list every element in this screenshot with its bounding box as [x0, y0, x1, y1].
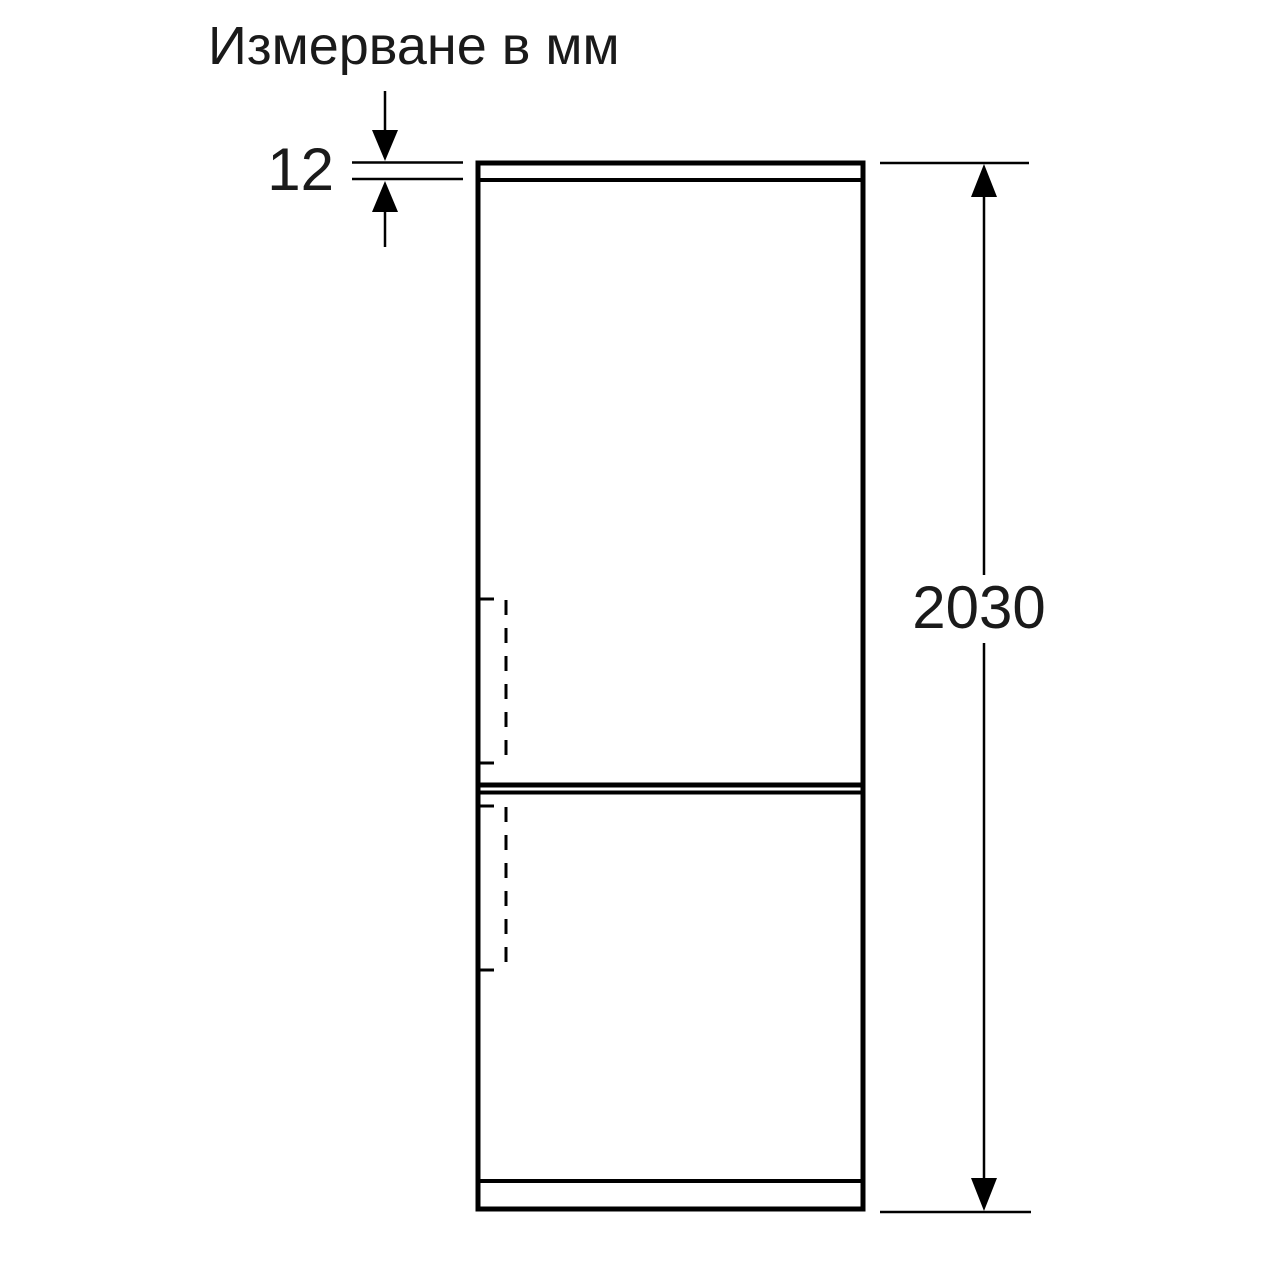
lower-door-hinge-marking — [478, 806, 506, 971]
dimension-diagram: Измерване в мм 12 — [0, 0, 1280, 1280]
upper-door-hinge-marking — [478, 599, 506, 766]
dim-top-thickness: 12 — [267, 91, 463, 247]
diagram-canvas: Измерване в мм 12 — [0, 0, 1280, 1280]
fridge-figure — [478, 163, 863, 1209]
arrow-up-icon — [971, 164, 997, 197]
arrow-up-icon — [372, 181, 398, 212]
arrow-down-icon — [372, 130, 398, 161]
dim-label-height: 2030 — [912, 574, 1045, 641]
arrow-down-icon — [971, 1178, 997, 1211]
dim-label-top-thickness: 12 — [267, 136, 334, 203]
diagram-title: Измерване в мм — [208, 16, 620, 76]
fridge-outline — [478, 163, 863, 1209]
dim-total-height: 2030 — [880, 163, 1046, 1212]
